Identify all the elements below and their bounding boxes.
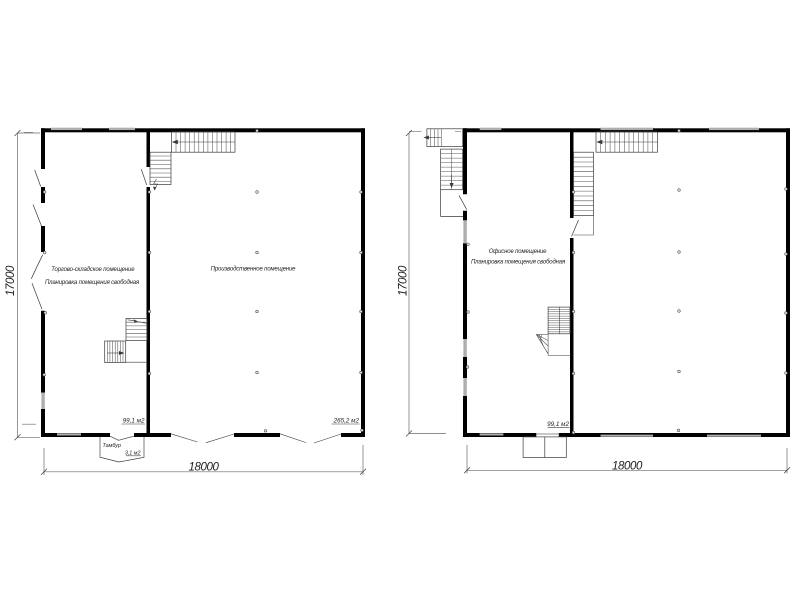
svg-text:Планировка помещения свободная: Планировка помещения свободная — [45, 280, 140, 286]
svg-text:17000: 17000 — [398, 265, 410, 296]
svg-text:17000: 17000 — [5, 265, 17, 296]
svg-text:99,1 м2: 99,1 м2 — [123, 417, 145, 424]
svg-text:18000: 18000 — [189, 461, 220, 473]
svg-text:Тамбур: Тамбур — [103, 443, 121, 449]
svg-text:Планировка помещения свободная: Планировка помещения свободная — [471, 259, 566, 265]
svg-text:99,1 м2: 99,1 м2 — [547, 421, 569, 428]
svg-text:Производственное помещение: Производственное помещение — [211, 266, 297, 272]
svg-text:Офисное помещение: Офисное помещение — [489, 249, 547, 255]
svg-text:18000: 18000 — [612, 461, 643, 473]
svg-text:3,1 м2: 3,1 м2 — [125, 450, 141, 456]
svg-text:Торгово-складское помещение: Торгово-складское помещение — [51, 267, 135, 273]
svg-text:265,2 м2: 265,2 м2 — [333, 417, 360, 424]
